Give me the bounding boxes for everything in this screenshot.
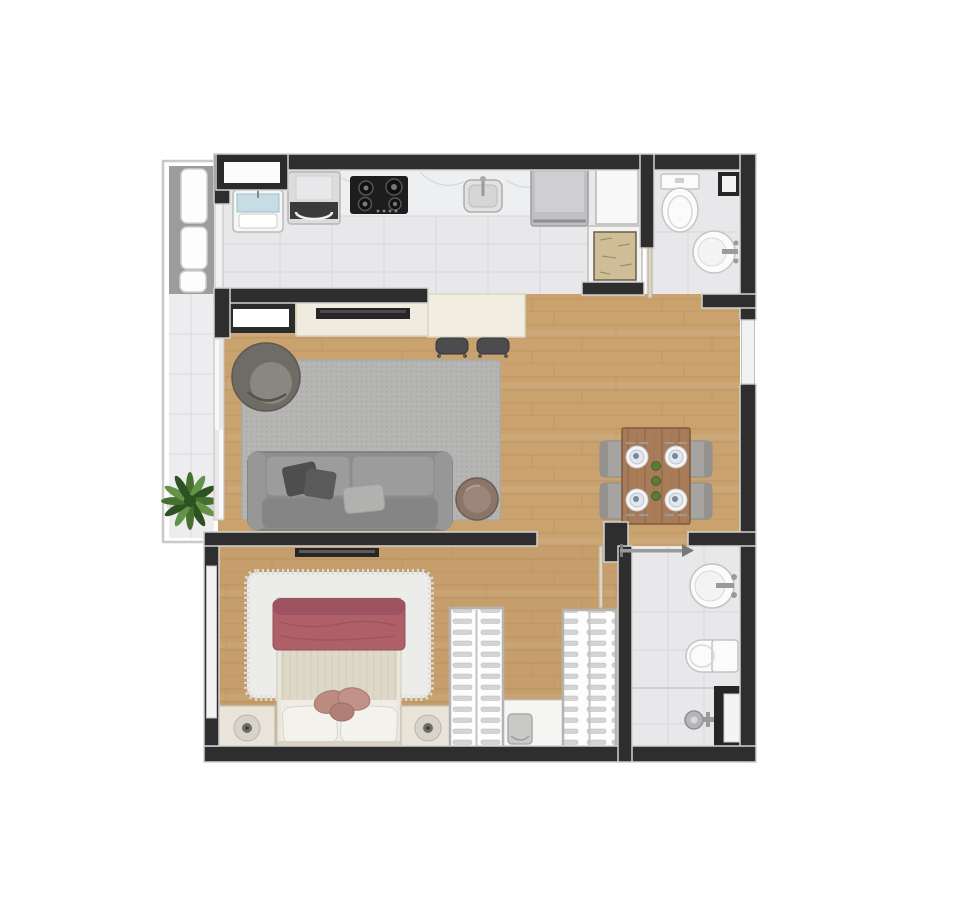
bedroom — [219, 548, 455, 748]
dining-area — [600, 428, 712, 524]
service-duct — [588, 226, 642, 286]
bedroom-tv — [295, 548, 379, 557]
louver-shutter-panel — [181, 227, 207, 269]
living-tv — [316, 308, 410, 319]
wall-bathroom-bottom-top — [688, 532, 756, 546]
blanket-fold — [273, 598, 405, 615]
wall-bedroom-top — [204, 532, 537, 546]
laundry-tub — [233, 186, 283, 232]
balcony-sliding-door — [214, 338, 224, 520]
refrigerator — [531, 168, 588, 226]
wall-bathroom-bottom-left — [618, 546, 632, 762]
floor-plan-drawing — [0, 0, 972, 900]
louver-shutter-panel — [180, 271, 206, 292]
balcony — [161, 161, 220, 542]
double-bed — [273, 598, 405, 746]
tall-cabinet — [596, 166, 638, 224]
living-room — [232, 343, 500, 530]
faucet — [722, 249, 738, 254]
bathroom-top-door-leaf — [648, 248, 652, 298]
nightstand-right — [401, 706, 455, 748]
accent-cushion — [330, 703, 354, 721]
bar-counter — [428, 294, 525, 337]
faucet — [716, 583, 734, 588]
throw-pillow-dark — [303, 468, 337, 500]
side-table — [456, 478, 498, 520]
sliding-leaf — [219, 430, 223, 518]
wall-kitchen-living-divider — [214, 288, 428, 303]
washing-machine — [288, 172, 340, 224]
kitchen-window-box — [216, 154, 288, 190]
faucet — [480, 176, 486, 182]
nightstand-left — [219, 706, 275, 748]
wall-duct-stub — [582, 282, 644, 295]
sofa — [248, 452, 452, 530]
cooktop — [350, 176, 408, 214]
bedroom-door-leaf — [599, 546, 603, 608]
floor-plan-canvas — [0, 0, 972, 900]
kitchen-sink — [464, 176, 502, 212]
wall-bottom — [204, 746, 756, 762]
wall-bathroom-top-bottom — [702, 294, 756, 308]
framed-cabinet — [233, 309, 289, 327]
wall-living-left-stub — [214, 288, 230, 338]
wardrobe-left — [450, 608, 503, 748]
throw-pillow-light — [343, 484, 385, 514]
closet-ottoman — [508, 714, 532, 744]
toilet — [686, 640, 738, 672]
living-tv-screen — [320, 310, 406, 313]
wall-right-lower — [740, 384, 756, 762]
toilet — [661, 174, 699, 232]
wall-bathroom-top-left — [640, 154, 654, 248]
round-armchair — [232, 343, 300, 411]
wardrobe-right — [563, 610, 616, 748]
louver-shutter-panel — [181, 169, 207, 223]
kitchen-balcony-glazing — [215, 204, 223, 290]
sliding-leaf — [215, 340, 219, 430]
window-right — [742, 320, 755, 384]
wall-niche — [718, 172, 740, 196]
window-bedroom-left — [207, 566, 217, 718]
table-centerpiece — [652, 462, 661, 501]
wall-top — [214, 154, 756, 170]
